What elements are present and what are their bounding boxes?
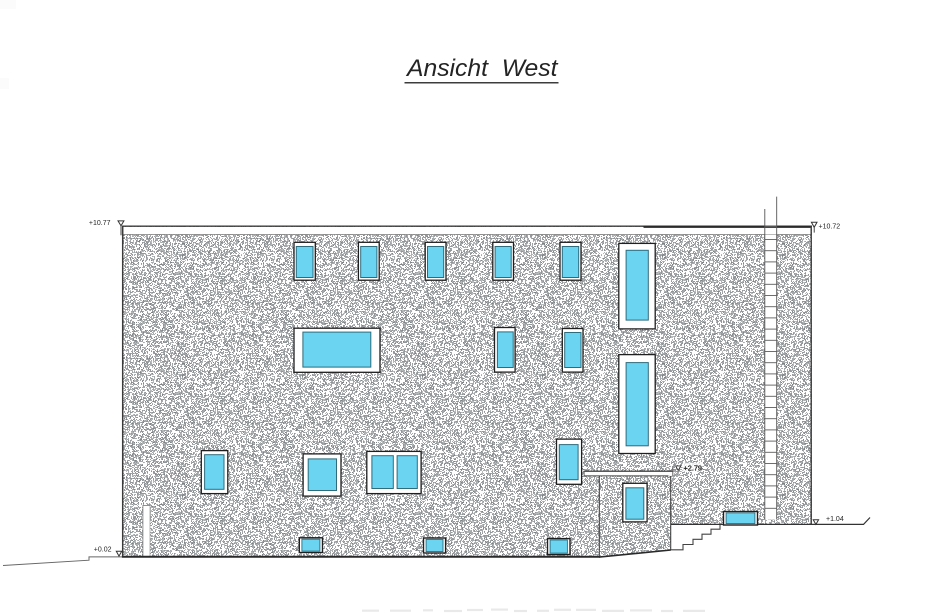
svg-text:+1.04: +1.04	[826, 516, 844, 523]
svg-text:+2.79: +2.79	[684, 463, 702, 472]
svg-text:+0.02: +0.02	[94, 546, 112, 553]
svg-text:Ansicht West: Ansicht West	[405, 55, 559, 82]
svg-text:+10.72: +10.72	[819, 224, 841, 231]
svg-text:+10.77: +10.77	[89, 220, 111, 227]
